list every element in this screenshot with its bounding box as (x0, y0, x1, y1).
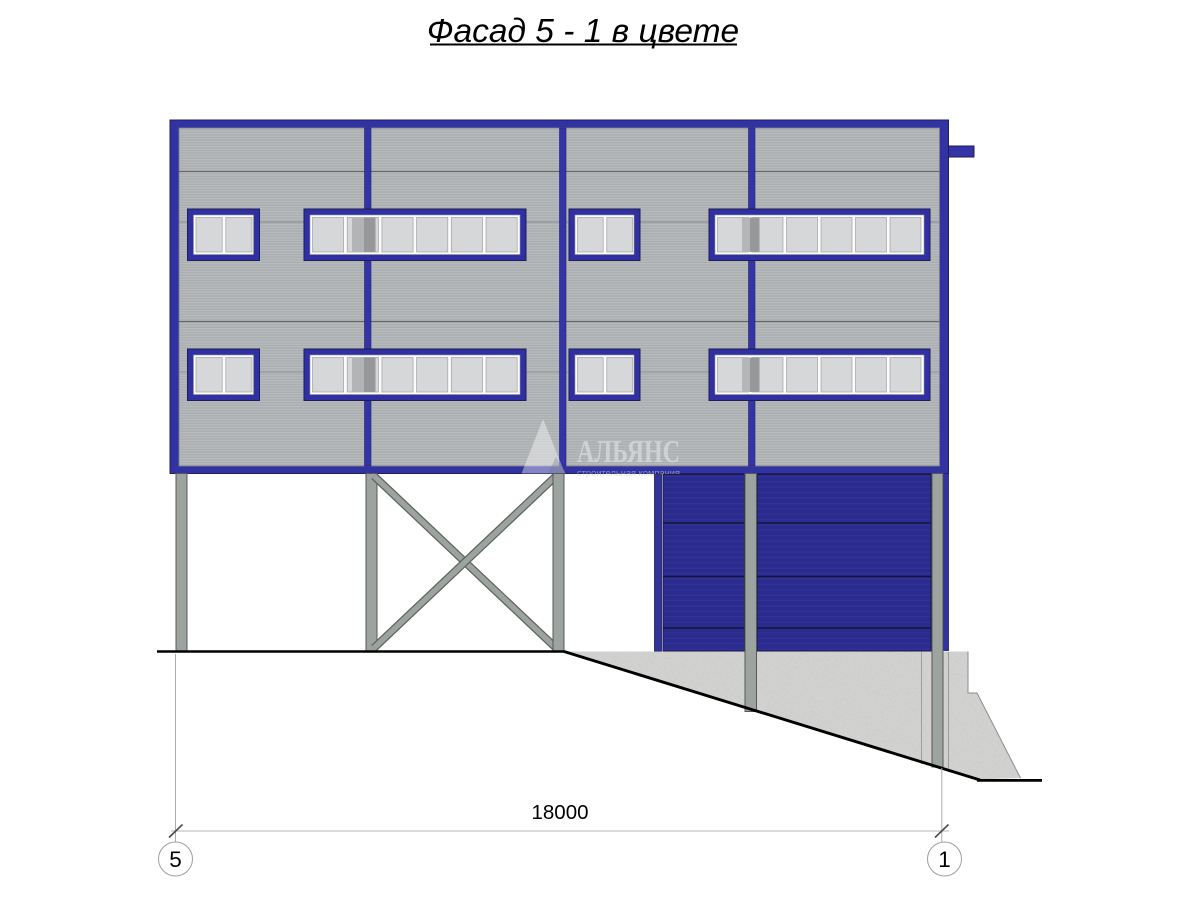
svg-text:1: 1 (938, 847, 951, 872)
svg-text:5: 5 (169, 847, 182, 872)
svg-text:АЛЬЯНС: АЛЬЯНС (577, 433, 680, 469)
svg-text:18000: 18000 (531, 801, 588, 824)
